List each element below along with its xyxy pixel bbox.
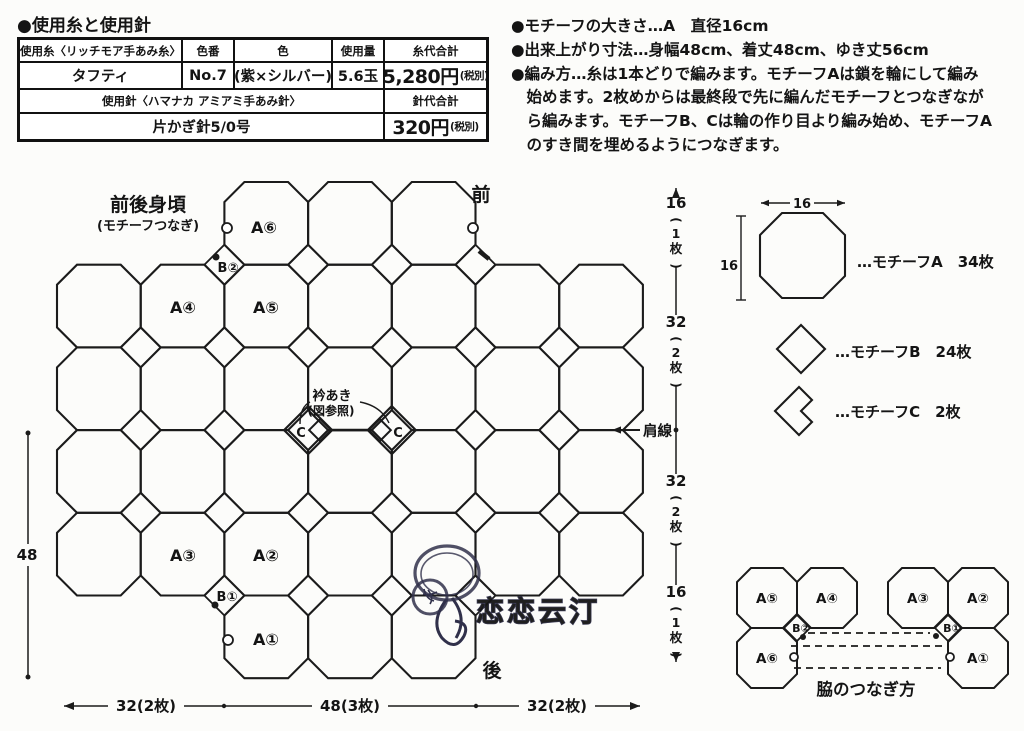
motif-b-diamond <box>204 327 244 367</box>
sidejoin-motif-label: A⑤ <box>756 591 778 607</box>
sidejoin-title: 脇のつなぎ方 <box>817 679 916 699</box>
motif-a-octagon <box>559 513 643 596</box>
sidejoin-b-label: B① <box>943 622 961 635</box>
motif-a-octagon <box>476 513 560 596</box>
pattern-page: ●使用糸と使用針 使用糸〈リッチモア手あみ糸〉 色番 色 使用量 糸代合計 タフ… <box>0 0 1024 731</box>
dim-tick <box>674 428 679 433</box>
legend-motif-c-shape <box>775 387 812 435</box>
front-label: 前 <box>471 183 490 206</box>
dot-marker <box>26 431 31 436</box>
dim-paren: ( <box>669 336 683 341</box>
motif-a-octagon <box>559 347 643 430</box>
dim-tick <box>474 704 478 708</box>
motif-a-octagon <box>308 596 392 679</box>
join-start-circle <box>222 223 232 233</box>
dim-paren: ( <box>669 495 683 500</box>
neck-sublabel: (図参照) <box>308 403 355 418</box>
motif-a-octagon <box>308 265 392 348</box>
motif-b-diamond <box>204 410 244 450</box>
motif-b-diamond <box>204 493 244 533</box>
motif-b-diamond <box>456 245 496 285</box>
dim-arrow <box>837 200 845 206</box>
legend-motif-b-diamond <box>777 325 825 373</box>
motif-a-octagon <box>308 182 392 265</box>
sidejoin-motif-label: A② <box>967 591 989 607</box>
diagram-subtitle: (モチーフつなぎ) <box>97 218 199 234</box>
motif-label: C <box>393 426 403 441</box>
motif-b-diamond <box>456 410 496 450</box>
dim-label-right: 2 <box>672 504 681 519</box>
sidejoin-motif-label: A① <box>967 651 989 667</box>
motif-label: C <box>296 426 306 441</box>
shoulder-label: 肩線 <box>643 422 672 440</box>
legend-item-label: …モチーフC 2枚 <box>835 403 962 421</box>
motif-b-diamond <box>121 327 161 367</box>
sidejoin-dot <box>800 634 806 640</box>
dim-paren: ) <box>669 652 683 657</box>
motif-label: A① <box>253 630 279 649</box>
dim-label-right: 1 <box>672 226 681 241</box>
motif-b-diamond <box>121 493 161 533</box>
dim-label-left: 48 <box>17 546 38 564</box>
motif-a-octagon <box>476 265 560 348</box>
dot-marker <box>26 675 31 680</box>
motif-b-diamond <box>372 327 412 367</box>
sidejoin-b-label: B② <box>792 622 810 635</box>
dim-label-right: 枚 <box>670 519 683 534</box>
dim-label-bottom: 32(2枚) <box>116 697 176 715</box>
motif-a-octagon <box>57 513 141 596</box>
motif-b-diamond <box>456 493 496 533</box>
legend-motif-a-octagon <box>760 213 845 298</box>
sidejoin-motif-label: A⑥ <box>756 651 778 667</box>
sidejoin-circle <box>790 653 798 661</box>
dim-label-bottom: 48(3枚) <box>320 697 380 715</box>
motif-join-diagram: A⑥B②A④A⑤CCA③A②B①A①前後身頃(モチーフつなぎ)前後衿あき(図参照… <box>0 0 1024 731</box>
dim-paren: ) <box>669 541 683 546</box>
motif-label: A⑥ <box>251 218 277 237</box>
legend-item-label: …モチーフA 34枚 <box>857 253 995 271</box>
motif-b-diamond <box>372 493 412 533</box>
dim-arrow <box>64 702 74 710</box>
dim-paren: ( <box>669 606 683 611</box>
watermark-text: 恋恋云汀 <box>476 595 600 628</box>
back-label: 後 <box>482 659 502 682</box>
motif-label: A④ <box>170 298 196 317</box>
motif-a-octagon <box>57 347 141 430</box>
motif-a-octagon <box>559 430 643 513</box>
motif-b-diamond <box>539 327 579 367</box>
legend-dim-16-h: 16 <box>793 197 811 212</box>
motif-b-diamond <box>539 410 579 450</box>
dim-label-right: 32 <box>666 313 687 331</box>
sidejoin-motif-label: A④ <box>816 591 838 607</box>
dim-label-right: 枚 <box>670 360 683 375</box>
motif-b-diamond <box>288 576 328 616</box>
legend-dim-16-v: 16 <box>720 259 738 274</box>
watermark-curl <box>437 598 466 645</box>
diagram-title: 前後身頃 <box>110 193 187 216</box>
dim-paren: ( <box>669 217 683 222</box>
join-start-dot <box>213 254 220 261</box>
dim-label-right: 16 <box>666 194 687 212</box>
dim-paren: ) <box>669 382 683 387</box>
motif-a-octagon <box>559 265 643 348</box>
motif-b-diamond <box>288 493 328 533</box>
motif-a-octagon <box>392 265 476 348</box>
motif-a-octagon <box>57 265 141 348</box>
dim-label-right: 32 <box>666 472 687 490</box>
motif-label: A② <box>253 546 279 565</box>
motif-b-diamond <box>372 245 412 285</box>
motif-label: A③ <box>170 546 196 565</box>
join-start-circle <box>223 635 233 645</box>
dim-paren: ) <box>669 263 683 268</box>
neck-label: 衿あき <box>312 388 351 404</box>
motif-a-octagon <box>141 347 225 430</box>
dim-label-right: 2 <box>672 345 681 360</box>
motif-b-diamond <box>456 327 496 367</box>
dim-tick <box>222 704 226 708</box>
motif-b-diamond <box>539 493 579 533</box>
dim-arrow <box>612 426 621 433</box>
motif-a-octagon <box>476 347 560 430</box>
motif-a-octagon <box>476 430 560 513</box>
motif-label: A⑤ <box>253 298 279 317</box>
motif-label: B② <box>218 261 239 276</box>
join-tick-mark <box>479 251 489 259</box>
motif-label: B① <box>217 590 238 605</box>
join-start-dot <box>212 602 219 609</box>
motif-b-diamond <box>288 245 328 285</box>
legend-item-label: …モチーフB 24枚 <box>835 343 972 361</box>
dim-label-right: 枚 <box>670 241 683 256</box>
sidejoin-motif-label: A③ <box>907 591 929 607</box>
dim-arrow <box>630 702 640 710</box>
motif-b-diamond <box>121 410 161 450</box>
motif-a-octagon <box>141 430 225 513</box>
motif-a-octagon <box>392 513 476 596</box>
dim-label-right: 16 <box>666 583 687 601</box>
motif-a-octagon <box>308 513 392 596</box>
motif-b-diamond <box>372 576 412 616</box>
motif-a-octagon <box>392 182 476 265</box>
motif-b-diamond <box>288 327 328 367</box>
join-start-circle <box>468 223 478 233</box>
sidejoin-circle <box>946 653 954 661</box>
dim-label-right: 枚 <box>670 630 683 645</box>
dim-arrow <box>761 200 769 206</box>
sidejoin-dot <box>933 633 939 639</box>
watermark-ring-inner <box>421 553 473 595</box>
motif-a-octagon <box>57 430 141 513</box>
dim-label-right: 1 <box>672 615 681 630</box>
dim-label-bottom: 32(2枚) <box>527 697 587 715</box>
